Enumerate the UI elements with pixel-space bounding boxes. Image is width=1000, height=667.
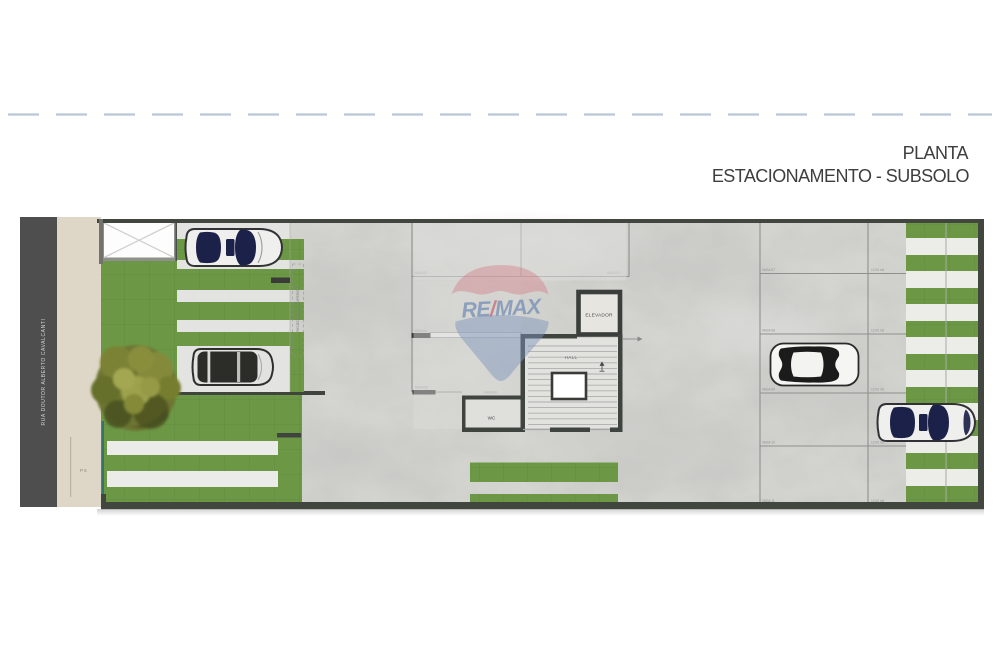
svg-text:VAGA 10: VAGA 10 (762, 441, 775, 445)
svg-text:HALL: HALL (565, 355, 578, 360)
svg-text:PLANTA: PLANTA (903, 143, 969, 163)
svg-text:PROJECAO PAV. SUPERIOR: PROJECAO PAV. SUPERIOR (296, 286, 300, 334)
svg-text:ESTACIONAMENTO - SUBSOLO: ESTACIONAMENTO - SUBSOLO (712, 166, 970, 186)
svg-text:WC: WC (488, 416, 496, 421)
svg-text:12.00 m2: 12.00 m2 (871, 329, 885, 333)
svg-text:12.00 m2: 12.00 m2 (871, 268, 885, 272)
svg-text:P 6: P 6 (80, 468, 87, 473)
svg-text:VAGA 07: VAGA 07 (762, 268, 775, 272)
svg-text:RE/MAX: RE/MAX (461, 294, 543, 322)
svg-text:RUA DOUTOR ALBERTO CAVALCANTI: RUA DOUTOR ALBERTO CAVALCANTI (41, 319, 47, 426)
svg-text:VAGA 09: VAGA 09 (762, 388, 775, 392)
svg-text:VAGA 08: VAGA 08 (762, 329, 775, 333)
svg-text:ELEVADOR: ELEVADOR (585, 313, 613, 319)
svg-text:12.00 m2: 12.00 m2 (871, 388, 885, 392)
